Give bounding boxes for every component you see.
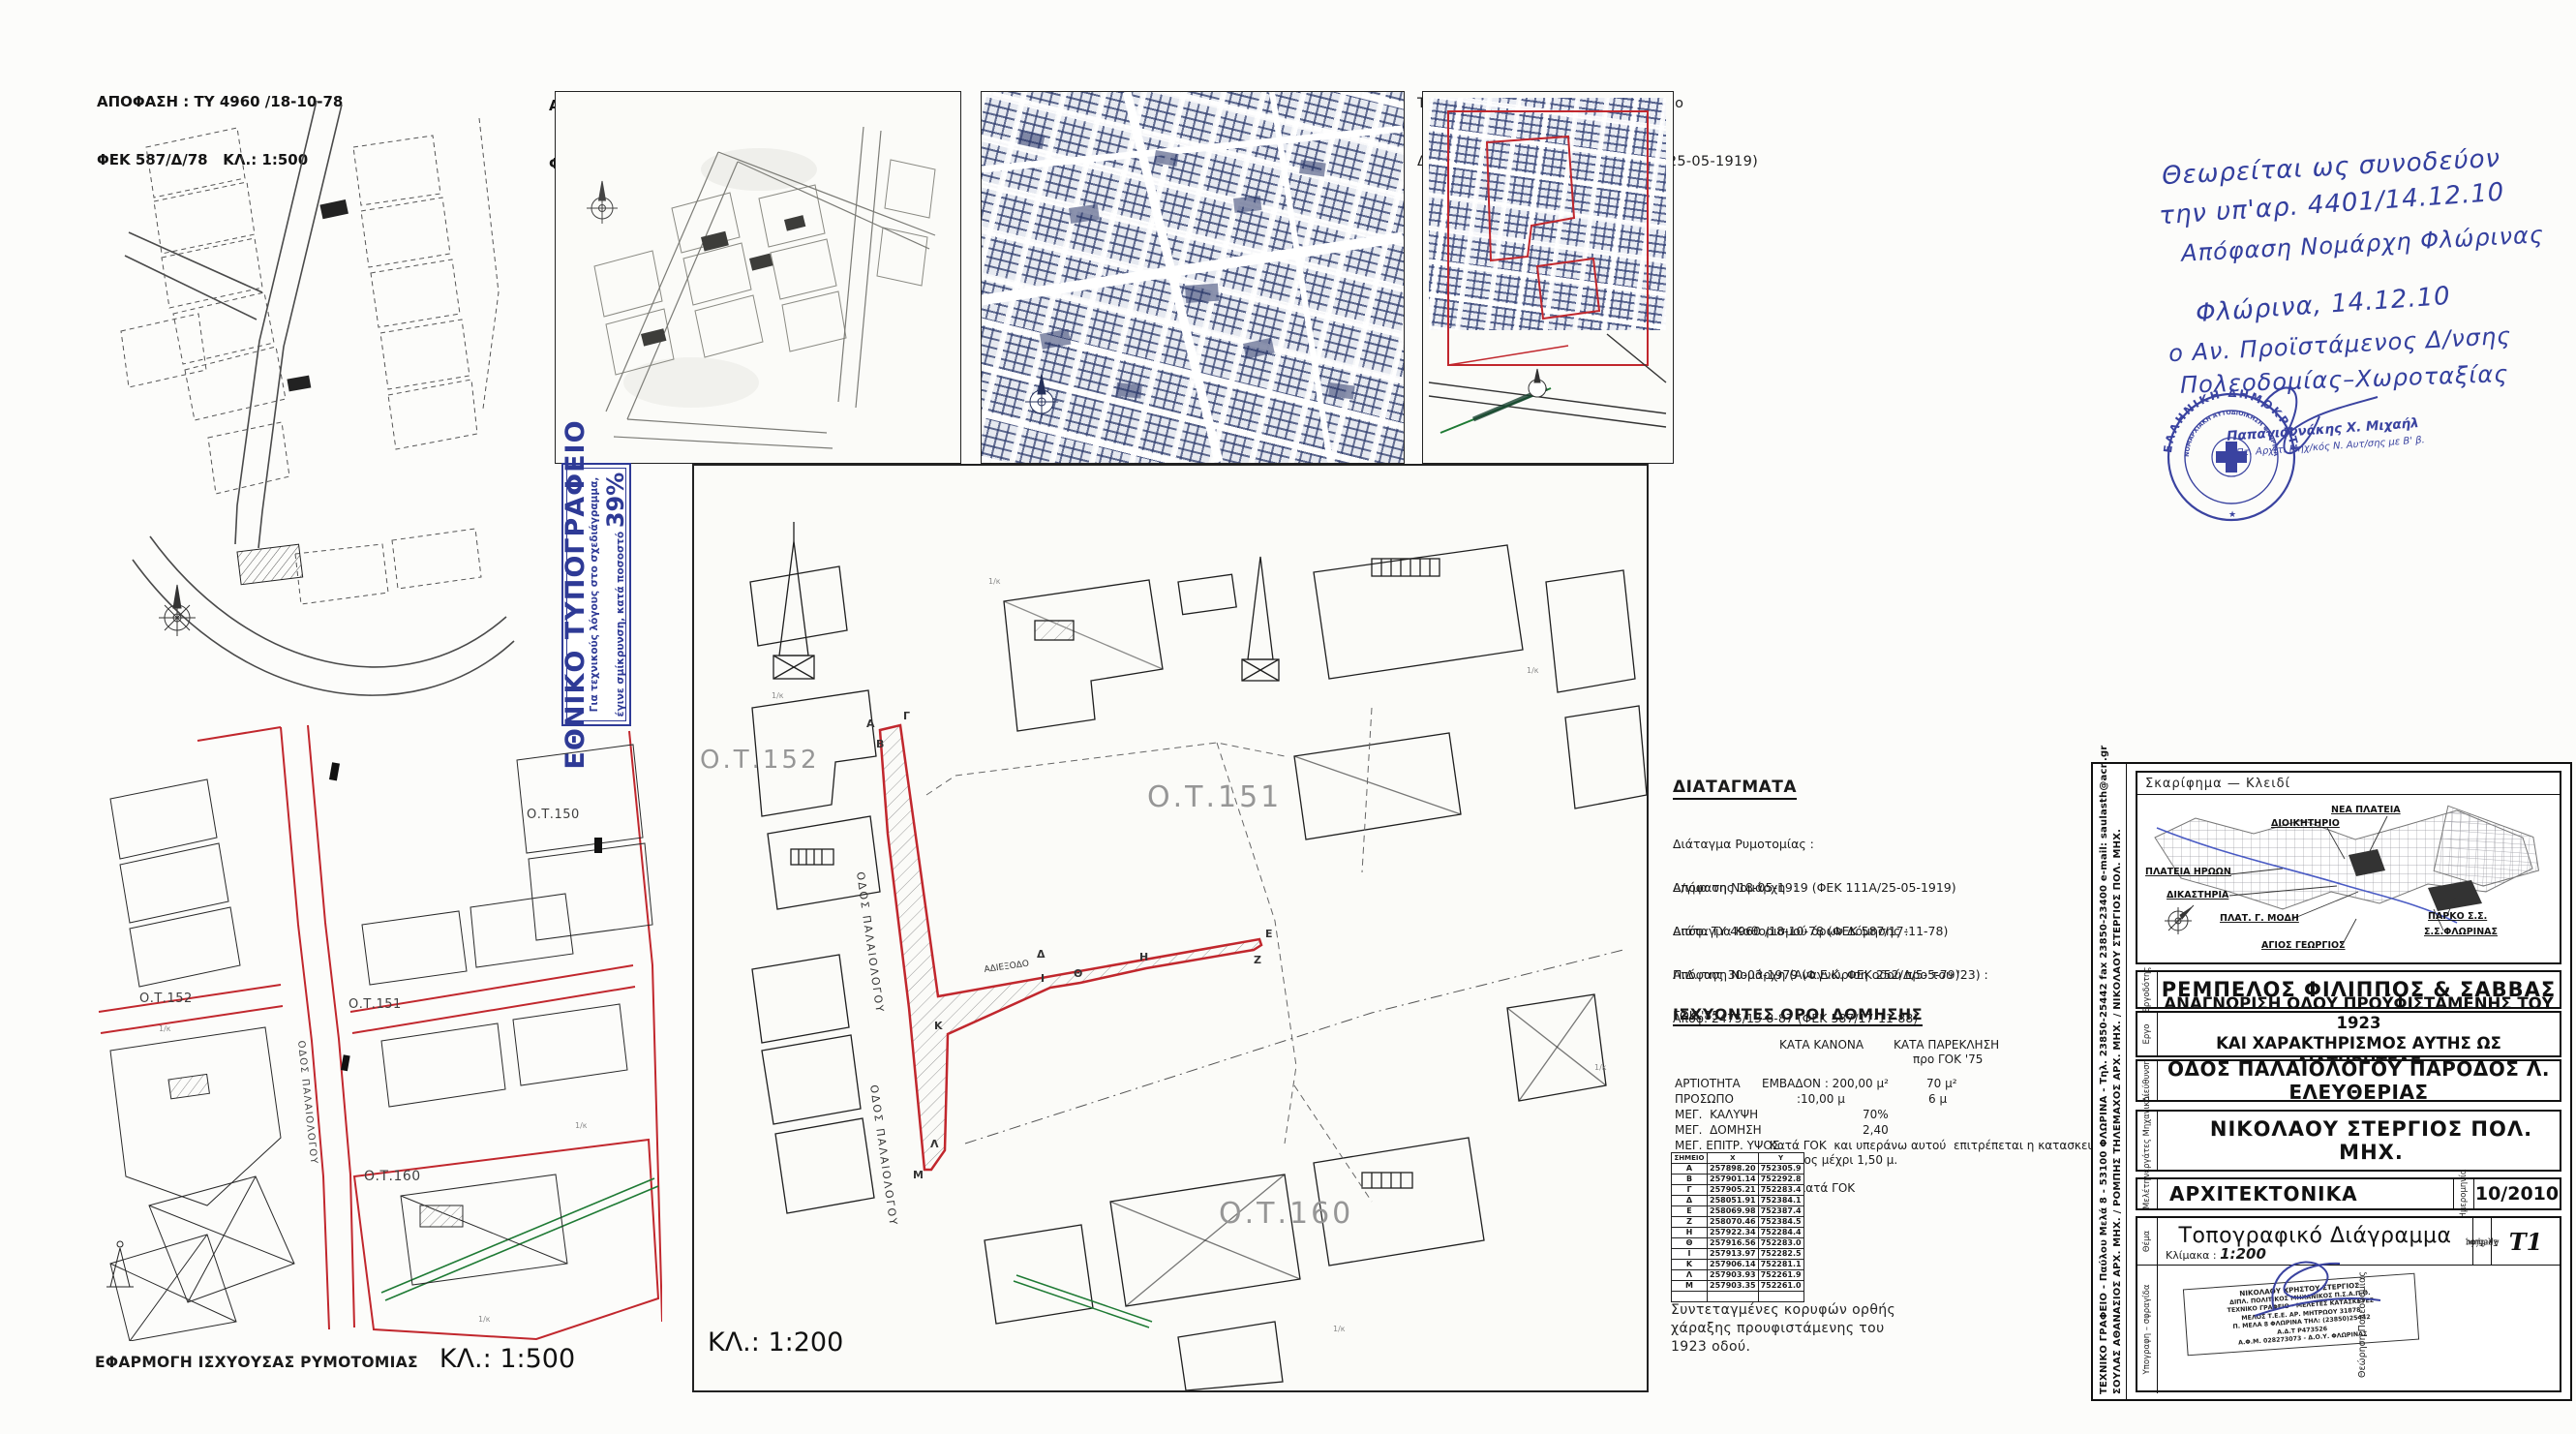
center-map-street-label-2: ΟΔΟΣ ΠΑΛΑΙΟΛΟΓΟΥ [867, 1084, 899, 1228]
center-map-street-label-1: ΟΔΟΣ ΠΑΛΑΙΟΛΟΓΟΥ [854, 871, 886, 1015]
coords-col-y: Υ [1758, 1153, 1803, 1164]
titleblock-sidebar-address: ΤΕΧΝΙΚΟ ΓΡΑΦΕΙΟ - Παύλου Μελά 8 - 53100 … [2099, 746, 2109, 1394]
project-line1: ΑΝΑΓΝΩΡΙΣΗ ΟΔΟΥ ΠΡΟΫΦΙΣΤΑΜΕΝΗΣ ΤΟΥ 1923 [2158, 994, 2560, 1034]
printing-office-stamp-percent: 39% [602, 473, 629, 528]
point-I: Ι [1041, 972, 1045, 985]
point-G: Γ [903, 710, 910, 722]
sketch-label-dioikitirio: ΔΙΟΙΚΗΤΗΡΙΟ [2271, 818, 2340, 829]
point-B: Β [876, 738, 884, 750]
sheet-number: Τ1 [2492, 1218, 2560, 1265]
left-map-ot150-label: Ο.Τ.150 [527, 808, 580, 822]
coords-row: Κ257906.14752281.1 [1672, 1260, 1804, 1270]
sketch-label-ss-florinas: Σ.Σ.ΦΛΩΡΙΝΑΣ [2424, 927, 2498, 937]
left-map-street-label: ΟΔΟΣ ΠΑΛΑΙΟΛΟΓΟΥ [295, 1040, 318, 1166]
decrees-heading: ΔΙΑΤΑΓΜΑΤΑ [1673, 778, 1797, 800]
point-D: Δ [1037, 948, 1046, 961]
left-map-caption-text: ΕΦΑΡΜΟΓΗ ΙΣΧΥΟΥΣΑΣ ΡΥΜΟΤΟΜΙΑΣ [95, 1354, 418, 1371]
coords-row: Θ257916.56752283.0 [1672, 1238, 1804, 1249]
printing-office-stamp-note1: Για τεχνικούς λόγους στο σχεδιάγραμμα, [589, 477, 600, 713]
coords-row: Λ257903.93752261.9 [1672, 1270, 1804, 1281]
compass-icon [159, 585, 196, 636]
printing-office-stamp-title: ΕΘΝΙΚΟ ΤΥΠΟΓΡΑΦΕΙΟ [562, 419, 589, 769]
coords-row: Μ257903.35752261.0 [1672, 1281, 1804, 1292]
terms-colB2: προ ΓΟΚ '75 [1913, 1053, 1983, 1066]
terms-heading: ΙΣΧΥΟΝΤΕΣ ΟΡΟΙ ΔΟΜΗΣΗΣ [1673, 1005, 1923, 1026]
coords-row: Δ258051.91752384.1 [1672, 1196, 1804, 1206]
row-subject-signature: Θέμα Τοπογραφικό Διάγραμμα Κλίμακα : 1:2… [2136, 1216, 2561, 1392]
left-map-ot160-label: Ο.Τ.160 [364, 1169, 421, 1184]
project-address: ΟΔΟΣ ΠΑΛΑΙΟΛΟΓΟΥ ΠΑΡΟΔΟΣ Λ. ΕΛΕΥΘΕΡΙΑΣ [2158, 1061, 2560, 1100]
small-label: 1/κ [159, 1024, 171, 1033]
coords-row: Η257922.34752284.4 [1672, 1228, 1804, 1238]
panel2-map [555, 91, 961, 464]
compass-icon [1025, 375, 1058, 418]
row-engineer-label: Συνεργάτες Μηχανικοί [2137, 1112, 2158, 1170]
row-client-label: Εργοδότης [2137, 972, 2158, 1007]
coords-col-x: Χ [1708, 1153, 1759, 1164]
dead-end-label: ΑΔΙΕΞΟΔΟ [984, 960, 1030, 975]
row-project: Εργο ΑΝΑΓΝΩΡΙΣΗ ΟΔΟΥ ΠΡΟΫΦΙΣΤΑΜΕΝΗΣ ΤΟΥ … [2136, 1011, 2561, 1057]
sketch-label-agios-georgios: ΑΓΙΟΣ ΓΕΩΡΓΙΟΣ [2261, 940, 2346, 951]
drawing-sheet: ΑΠΟΦΑΣΗ : ΤΥ 4960 /18-10-78 ΦΕΚ 587/Δ/78… [0, 0, 2576, 1434]
handwritten-line-5: ο Αν. Προϊστάμενος Δ/νσης [2168, 322, 2512, 368]
subject-label: Θέμα [2137, 1218, 2158, 1265]
official-round-stamp: ΕΛΛΗΝΙΚΗ ΔΗΜΟΚΡΑΤΙΑ ΝΟΜΑΡΧΙΑΚΗ ΑΥΤΟΔΙΟΙΚ… [2147, 380, 2399, 554]
small-label: 1/κ [575, 1121, 588, 1130]
point-E: Ε [1265, 928, 1273, 940]
coords-table-body: Α257898.20752305.9Β257901.14752292.8Γ257… [1672, 1164, 1804, 1302]
sketch-label-plat-modi: ΠΛΑΤ. Γ. ΜΟΔΗ [2220, 913, 2299, 924]
coords-caption: Συντεταγμένες κορυφών ορθής χάραξης πρου… [1671, 1301, 1895, 1357]
row-project-label: Εργο [2137, 1013, 2158, 1055]
left-map-scale: ΚΛ.: 1:500 [439, 1344, 575, 1374]
point-L: Λ [930, 1138, 939, 1150]
coords-row: Ι257913.97752282.5 [1672, 1249, 1804, 1260]
handwritten-line-4: Φλώρινα, 14.12.10 [2195, 282, 2451, 328]
terms-colA: ΚΑΤΑ ΚΑΝΟΝΑ [1779, 1038, 1864, 1052]
center-map-ot152-label: Ο.Τ.152 [700, 746, 820, 775]
planning-approval-label: Θεώρηση Πολεοδομίας [2357, 1271, 2368, 1378]
sketch-label-nea-plateia: ΝΕΑ ΠΛΑΤΕΙΑ [2331, 805, 2401, 815]
center-map-scale: ΚΛ.: 1:200 [708, 1327, 843, 1358]
panel4-map [1422, 91, 1674, 464]
center-map: Ο.Τ.152 Ο.Τ.151 Ο.Τ.160 ΟΔΟΣ ΠΑΛΑΙΟΛΟΓΟΥ… [694, 466, 1647, 1390]
panel1-map [92, 89, 518, 753]
left-map-ot151-label: Ο.Τ.151 [349, 997, 402, 1012]
printing-office-stamp: ΕΘΝΙΚΟ ΤΥΠΟΓΡΑΦΕΙΟ Για τεχνικούς λόγους … [561, 463, 631, 726]
row-study: Μελέτη ΑΡΧΙΤΕΚΤΟΝΙΚΑ Ημερομηνία 10/2010 [2136, 1177, 2561, 1210]
coords-row [1672, 1292, 1804, 1302]
coords-row: Α257898.20752305.9 [1672, 1164, 1804, 1175]
sheet-number-label: Αριθμός Σχεδίου [2472, 1218, 2492, 1265]
engineer-signature [2245, 1252, 2390, 1329]
study-type: ΑΡΧΙΤΕΚΤΟΝΙΚΑ [2158, 1179, 2453, 1208]
decrees-block: ΔΙΑΤΑΓΜΑΤΑ [1673, 778, 1797, 800]
point-Th: Θ [1074, 967, 1082, 980]
small-label: 1/κ [772, 691, 784, 700]
center-map-ot160-label: Ο.Τ.160 [1219, 1197, 1353, 1231]
terms-colB: ΚΑΤΑ ΠΑΡΕΚΛΗΣΗ [1894, 1038, 1999, 1052]
row-study-label: Μελέτη [2137, 1179, 2158, 1208]
panel3-map [981, 91, 1405, 464]
sketch-label-parko: ΠΑΡΚΟ Σ.Σ. [2428, 911, 2487, 922]
point-M: Μ [913, 1169, 924, 1181]
small-label: 1/κ [1333, 1325, 1346, 1333]
coords-row: Ζ258070.46752384.5 [1672, 1217, 1804, 1228]
engineer-name: ΝΙΚΟΛΑΟΥ ΣΤΕΡΓΙΟΣ ΠΟΛ. ΜΗΧ. [2158, 1112, 2560, 1170]
signature-area-label: Υπογραφη – σφραγίδα [2137, 1266, 2158, 1393]
coords-row: Β257901.14752292.8 [1672, 1175, 1804, 1185]
point-Z: Ζ [1254, 954, 1261, 966]
left-map: Ο.Τ.150 Ο.Τ.152 Ο.Τ.151 Ο.Τ.160 ΟΔΟΣ ΠΑΛ… [91, 721, 662, 1341]
small-label: 1/κ [988, 577, 1001, 586]
left-map-ot152-label: Ο.Τ.152 [139, 992, 193, 1006]
sketch-title: Σκαρίφημα — Κλειδί [2137, 773, 2560, 795]
sketch-box: Σκαρίφημα — Κλειδί [2136, 771, 2561, 964]
coords-table: ΣΗΜΕΙΟ Χ Υ Α257898.20752305.9Β257901.147… [1671, 1152, 1804, 1302]
small-label: 1/κ [1527, 666, 1539, 675]
compass-icon [2165, 905, 2194, 934]
coords-row: Ε258069.98752387.4 [1672, 1206, 1804, 1217]
coords-row: Γ257905.21752283.4 [1672, 1185, 1804, 1196]
stamp-star: ★ [2228, 510, 2236, 520]
sidebar-divider [2126, 764, 2127, 1399]
row-engineer: Συνεργάτες Μηχανικοί ΝΙΚΟΛΑΟΥ ΣΤΕΡΓΙΟΣ Π… [2136, 1110, 2561, 1172]
compass-icon [587, 181, 618, 224]
handwritten-line-3: Απόφαση Νομάρχη Φλώρινας [2181, 221, 2545, 267]
printing-office-stamp-note2: έγινε σμίκρυνση, κατά ποσοστό [615, 532, 626, 717]
sketch-label-plateia-iroon: ΠΛΑΤΕΙΑ ΗΡΩΩΝ [2145, 867, 2231, 877]
center-map-frame: Ο.Τ.152 Ο.Τ.151 Ο.Τ.160 ΟΔΟΣ ΠΑΛΑΙΟΛΟΓΟΥ… [692, 464, 1649, 1392]
point-A: Α [866, 717, 875, 730]
sketch-label-dikastiria: ΔΙΚΑΣΤΗΡΙΑ [2167, 890, 2229, 900]
small-label: 1/κ [1594, 1063, 1607, 1072]
titleblock-sidebar-engineers: ΣΟΥΛΑΣ ΑΘΑΝΑΣΙΟΣ ΑΡΧ. ΜΗΧ. / ΡΟΜΠΗΣ ΤΗΛΕ… [2112, 829, 2123, 1394]
row-date-label: Ημερομηνία [2453, 1179, 2474, 1208]
point-K: Κ [934, 1020, 943, 1032]
sketch-map: ΝΕΑ ΠΛΑΤΕΙΑ ΔΙΟΙΚΗΤΗΡΙΟ ΠΛΑΤΕΙΑ ΗΡΩΩΝ ΔΙ… [2137, 795, 2560, 961]
coords-col-point: ΣΗΜΕΙΟ [1672, 1153, 1708, 1164]
small-label: 1/κ [478, 1315, 491, 1324]
left-map-caption: ΕΦΑΡΜΟΓΗ ΙΣΧΥΟΥΣΑΣ ΡΥΜΟΤΟΜΙΑΣ ΚΛ.: 1:500 [95, 1344, 575, 1374]
center-map-ot151-label: Ο.Τ.151 [1147, 780, 1282, 814]
row-address: Διεύθυνση ΟΔΟΣ ΠΑΛΑΙΟΛΟΓΟΥ ΠΑΡΟΔΟΣ Λ. ΕΛ… [2136, 1059, 2561, 1102]
point-H: Η [1139, 951, 1148, 963]
compass-icon [1529, 369, 1546, 397]
study-date: 10/2010 [2474, 1179, 2560, 1208]
